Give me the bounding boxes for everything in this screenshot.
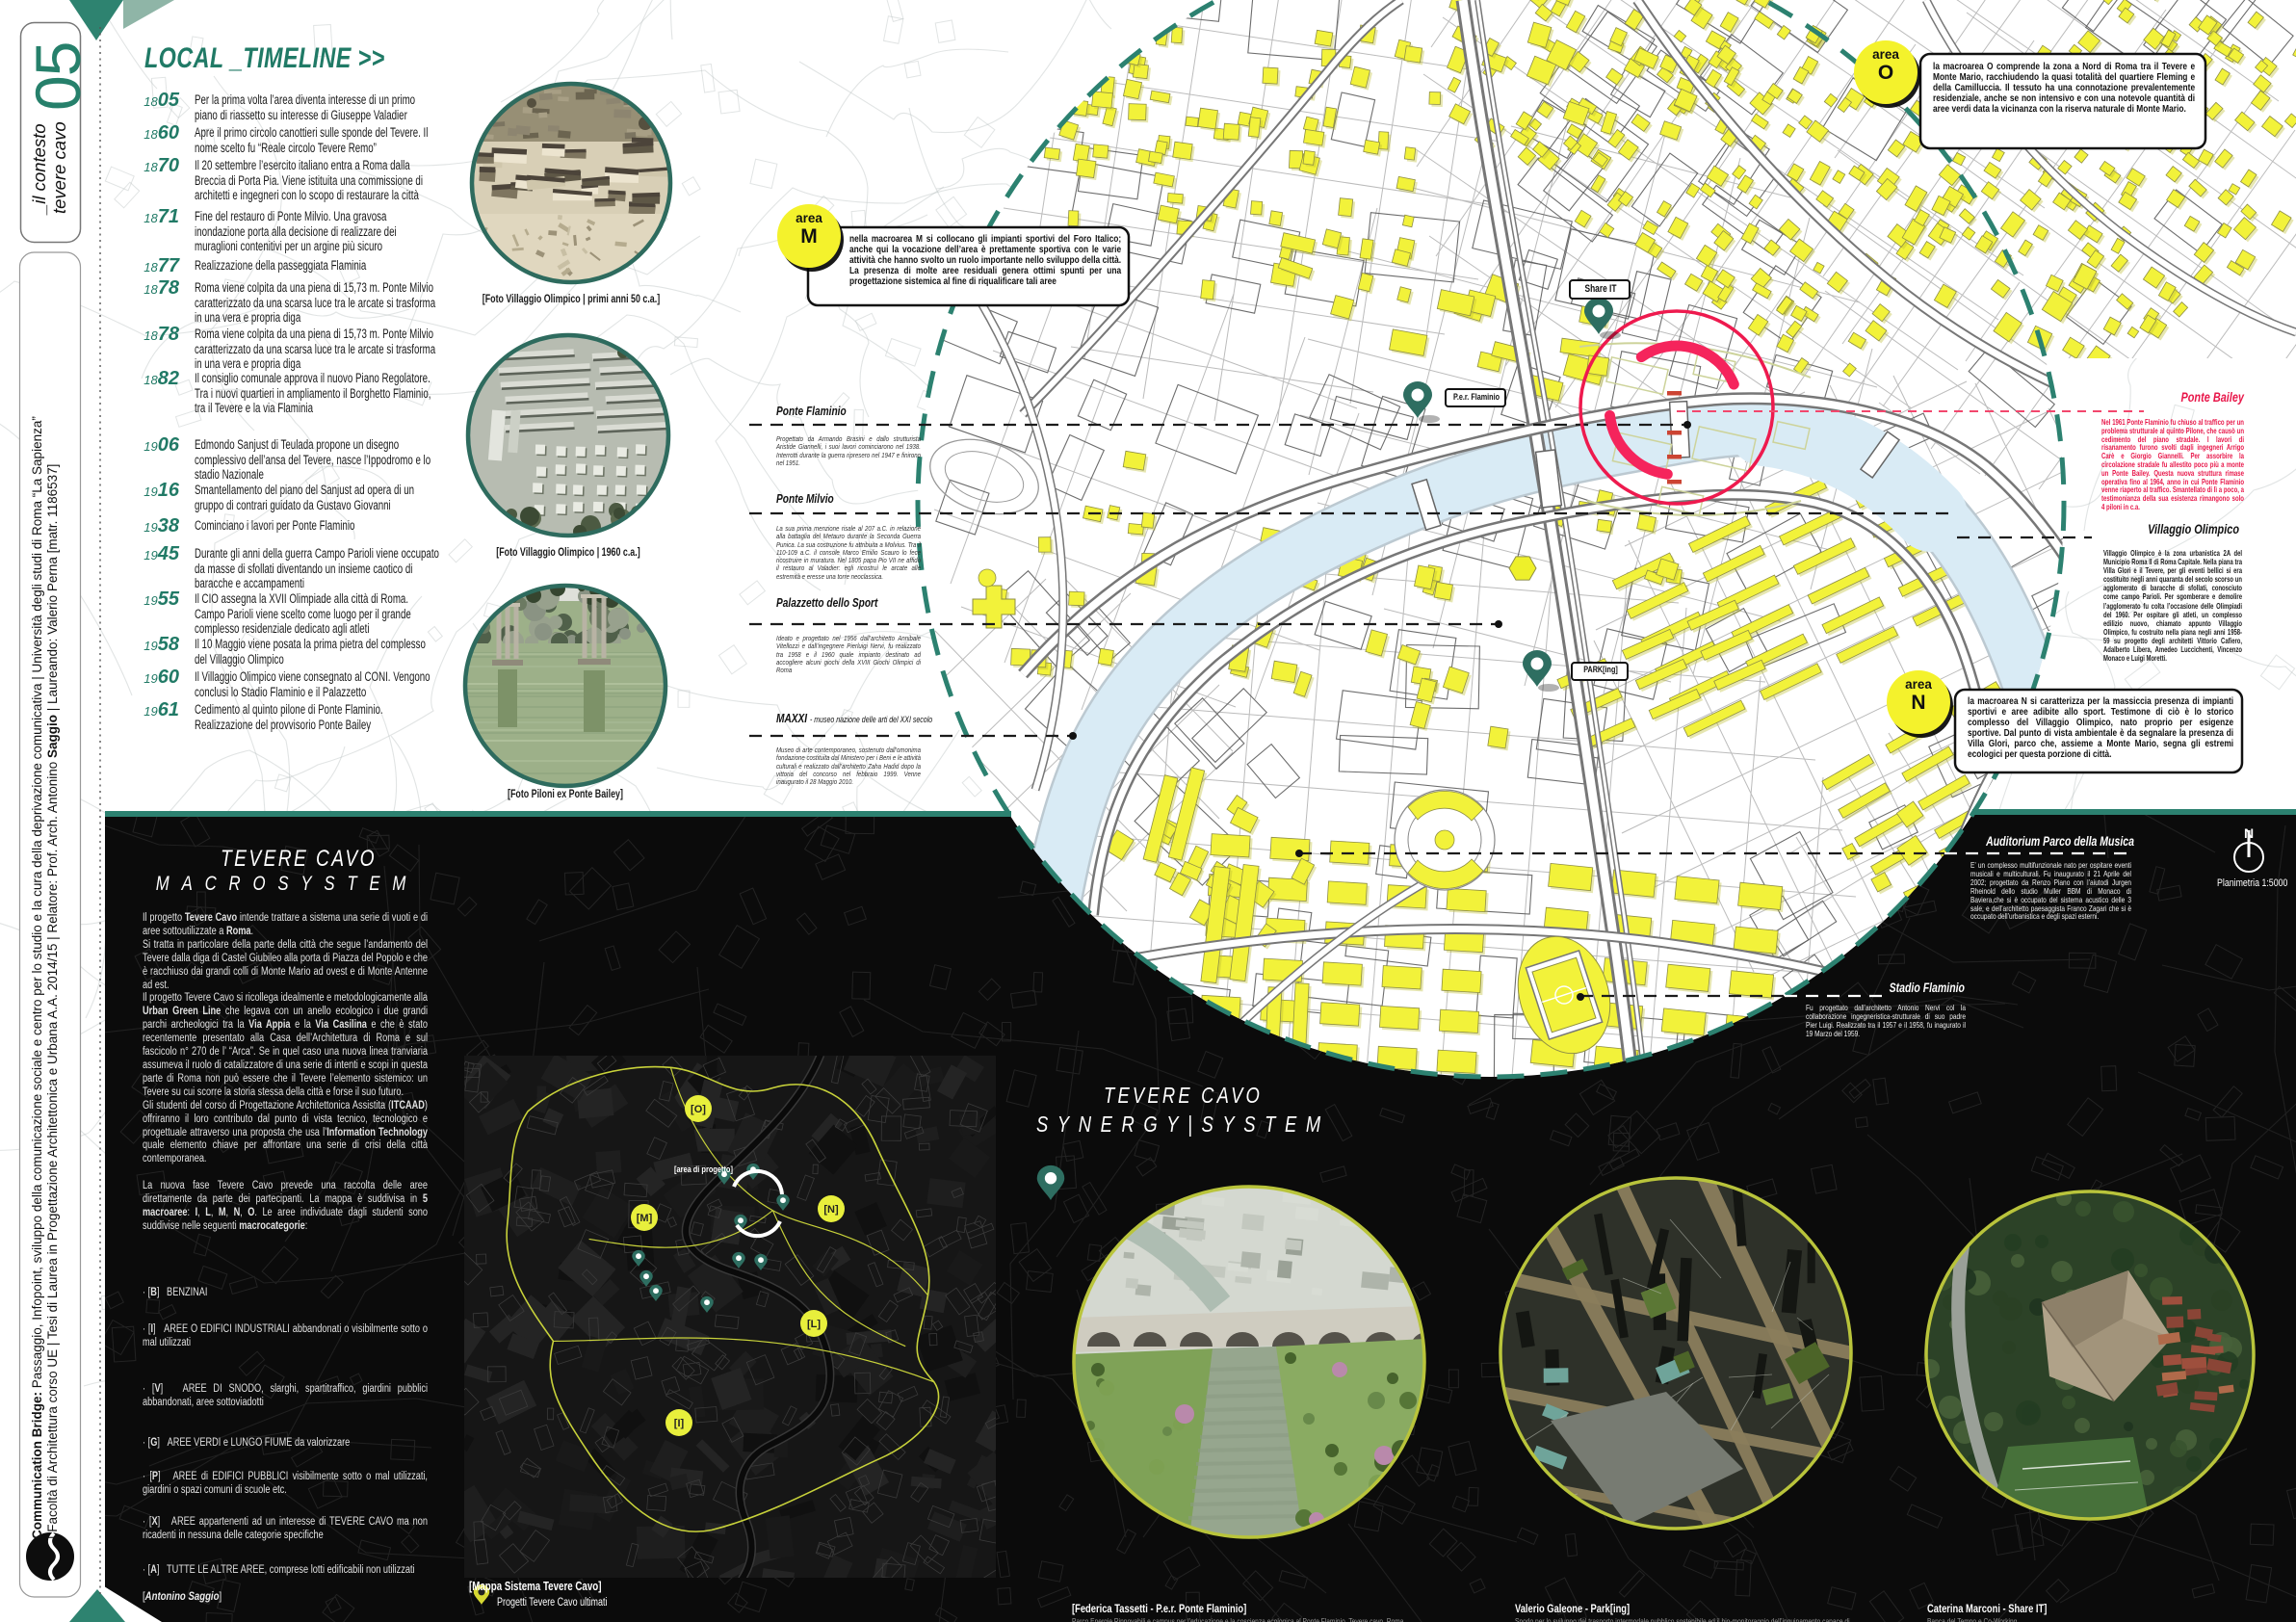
svg-text:[M]: [M] bbox=[637, 1213, 653, 1224]
svg-text:[I]: [I] bbox=[674, 1418, 685, 1429]
svg-text:[O]: [O] bbox=[691, 1104, 706, 1115]
svg-text:[L]: [L] bbox=[807, 1319, 821, 1330]
svg-text:[N]: [N] bbox=[823, 1204, 839, 1216]
